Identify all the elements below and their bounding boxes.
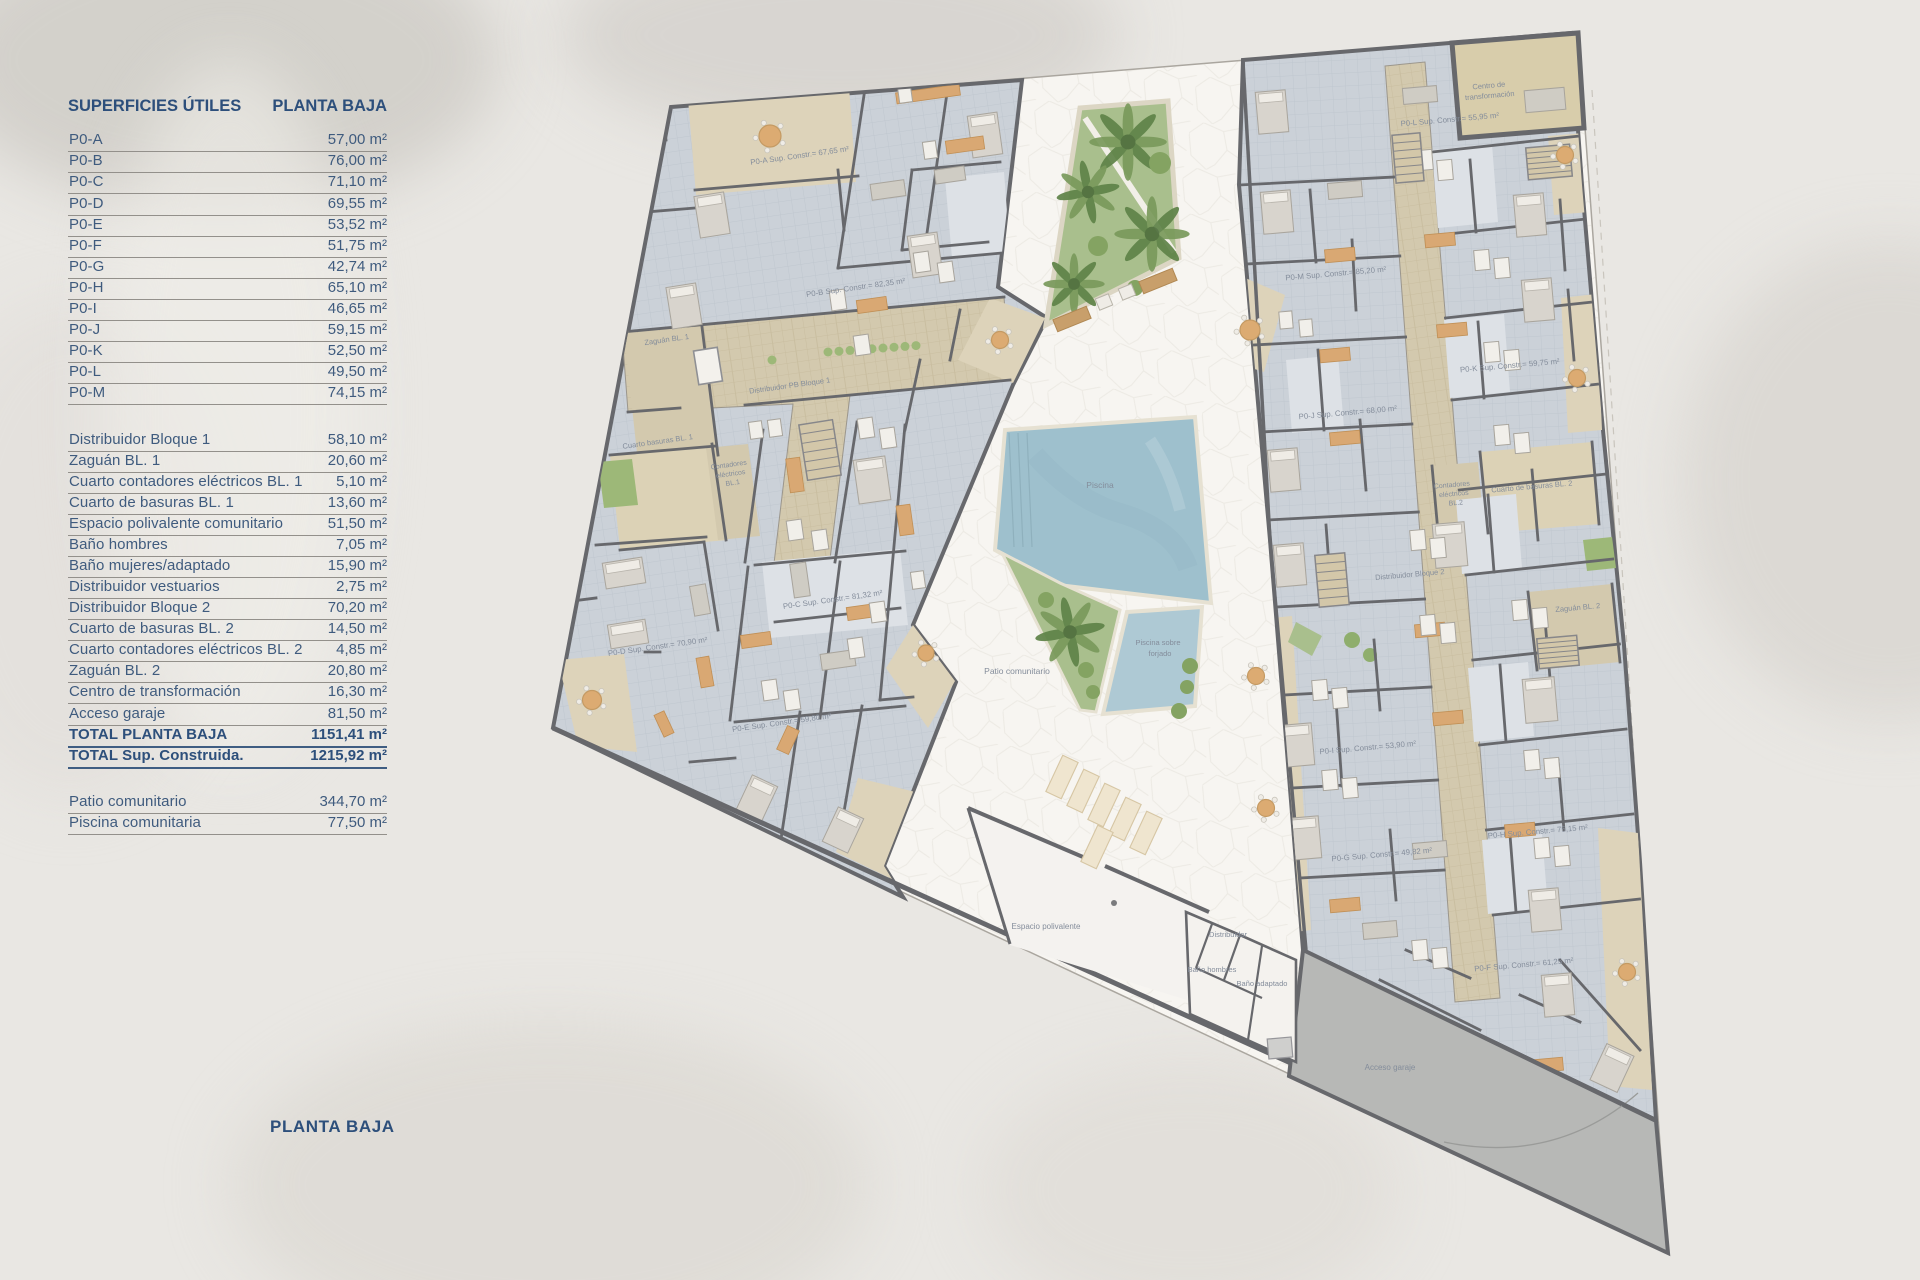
svg-text:Espacio polivalente: Espacio polivalente — [1012, 922, 1081, 931]
svg-text:Acceso garaje: Acceso garaje — [1365, 1063, 1416, 1072]
svg-text:BL.2: BL.2 — [1448, 499, 1463, 507]
svg-text:Patio comunitario: Patio comunitario — [984, 666, 1050, 676]
svg-text:Piscina sobre: Piscina sobre — [1135, 638, 1180, 647]
svg-text:forjado: forjado — [1149, 649, 1172, 658]
svg-text:Piscina: Piscina — [1086, 480, 1114, 490]
svg-text:Distribuidor: Distribuidor — [1209, 930, 1247, 939]
svg-text:Baño adaptado: Baño adaptado — [1237, 979, 1288, 988]
svg-text:Baño hombres: Baño hombres — [1188, 965, 1237, 974]
